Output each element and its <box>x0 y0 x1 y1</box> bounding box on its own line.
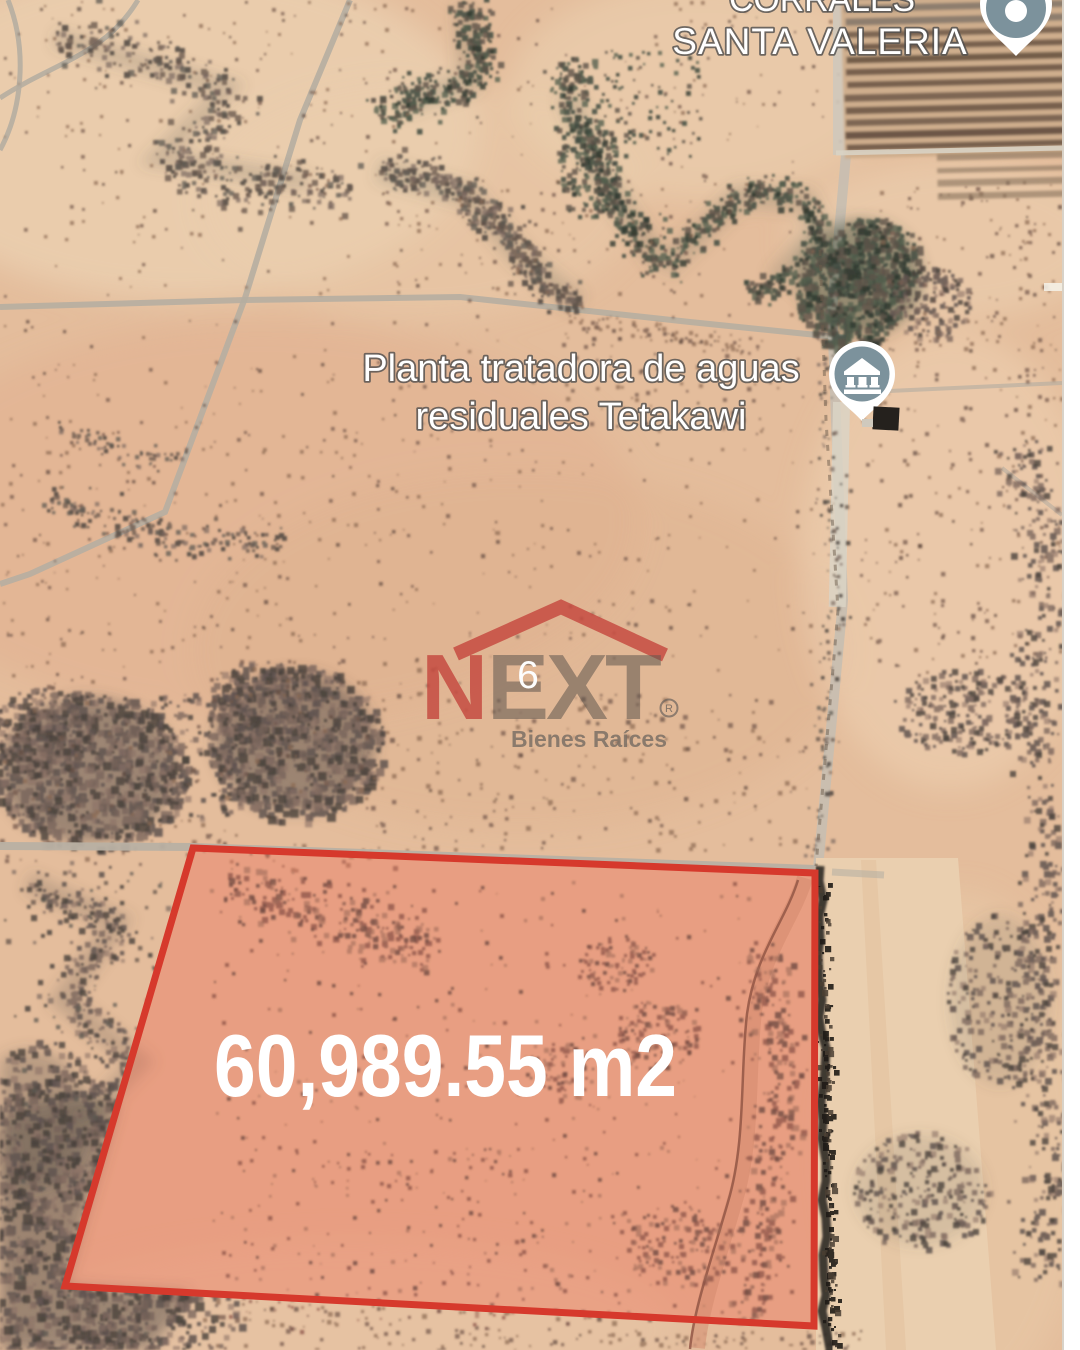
svg-text:Bienes Raíces: Bienes Raíces <box>511 726 667 752</box>
svg-text:6: 6 <box>517 654 539 697</box>
svg-text:SANTA VALERIA: SANTA VALERIA <box>672 21 967 62</box>
svg-text:Planta tratadora de aguas: Planta tratadora de aguas <box>362 348 799 390</box>
svg-text:CORRALES: CORRALES <box>729 0 915 19</box>
svg-text:N: N <box>421 635 485 739</box>
svg-text:EXT: EXT <box>487 635 661 739</box>
svg-text:R: R <box>665 703 673 715</box>
svg-text:residuales Tetakawi: residuales Tetakawi <box>416 396 747 438</box>
svg-text:60,989.55 m2: 60,989.55 m2 <box>214 1016 677 1115</box>
